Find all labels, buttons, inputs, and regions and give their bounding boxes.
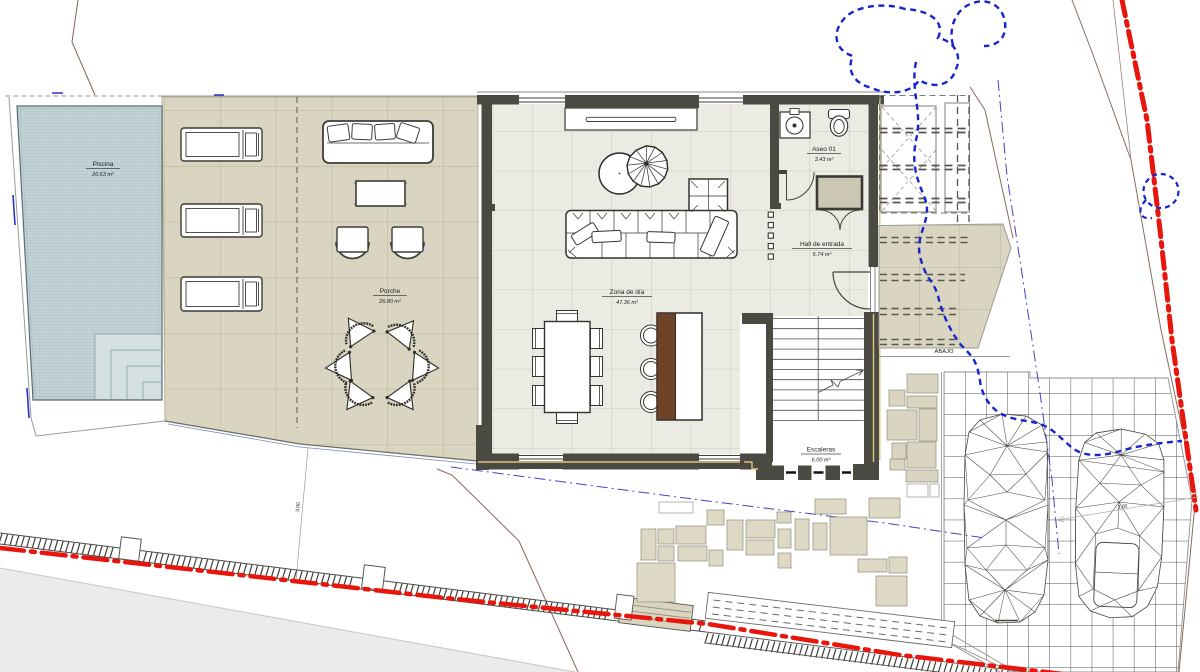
svg-text:Piscina: Piscina [93, 161, 114, 168]
svg-text:26.80 m²: 26.80 m² [378, 299, 401, 305]
svg-text:Aseo 01: Aseo 01 [812, 146, 836, 153]
svg-text:5.74 m²: 5.74 m² [813, 252, 832, 258]
svg-text:ABAJO: ABAJO [934, 349, 953, 355]
svg-text:Escaleras: Escaleras [807, 447, 836, 454]
svg-text:Hall de entrada: Hall de entrada [800, 241, 844, 248]
svg-text:Porche: Porche [380, 288, 401, 295]
svg-text:Zona de día: Zona de día [610, 289, 645, 296]
svg-text:3.43 m²: 3.43 m² [815, 157, 834, 163]
svg-text:6.00 m²: 6.00 m² [812, 458, 831, 464]
svg-text:20.63 m²: 20.63 m² [91, 172, 114, 178]
svg-text:47.36 m²: 47.36 m² [616, 300, 638, 306]
svg-text:3.00: 3.00 [295, 502, 302, 513]
